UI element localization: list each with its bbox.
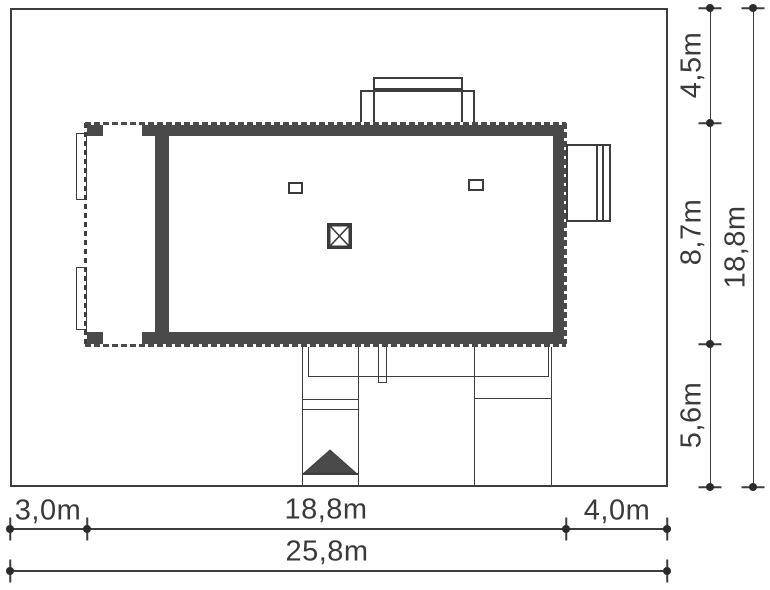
roof-outline-top-dashed xyxy=(85,122,566,125)
site-plan: 3,0m 18,8m 4,0m 25,8m 4,5m 8,7m 5,6m 18,… xyxy=(0,0,770,590)
terrace-line-v7 xyxy=(548,345,549,377)
dim-dot xyxy=(6,567,14,575)
terrace-step-line-h5 xyxy=(474,398,552,399)
walkway-step-line-2 xyxy=(302,409,359,410)
dim-label-right-top: 4,5m xyxy=(676,32,709,98)
roof-window-right xyxy=(468,179,484,191)
top-dormer-outline-outer xyxy=(360,90,475,124)
terrace-line-v2 xyxy=(308,345,309,377)
roof-outline-bottom-dashed xyxy=(85,344,566,347)
walkway-right-edge xyxy=(358,345,359,486)
terrace-step-line-h2 xyxy=(378,382,387,383)
dim-dot xyxy=(749,483,757,491)
dim-label-bottom-total: 25,8m xyxy=(285,536,368,569)
dim-dot xyxy=(706,4,714,12)
dim-dot xyxy=(562,525,570,533)
dim-label-right-middle: 8,7m xyxy=(676,199,709,265)
terrace-open-edge-dashed xyxy=(84,123,87,345)
dim-dot xyxy=(663,525,671,533)
terrace-line-v6 xyxy=(474,345,475,486)
dim-line-right-segments xyxy=(710,8,712,487)
right-bay-inner-line-2 xyxy=(602,145,604,221)
right-side-bay-outline xyxy=(566,144,611,222)
dim-dot xyxy=(749,4,757,12)
dim-dot xyxy=(706,119,714,127)
dim-label-right-bottom: 5,6m xyxy=(676,382,709,448)
house-wall-left xyxy=(155,123,169,345)
dim-dot xyxy=(663,567,671,575)
dim-line-bottom-total xyxy=(10,570,668,572)
terrace-pillar-top xyxy=(87,123,103,136)
dim-label-bottom-middle: 18,8m xyxy=(284,494,367,527)
entrance-arrow xyxy=(303,449,357,474)
dim-line-right-total xyxy=(753,8,755,487)
dim-label-bottom-left: 3,0m xyxy=(15,495,81,528)
house-wall-top xyxy=(142,123,566,136)
dim-dot xyxy=(706,483,714,491)
roof-window-left xyxy=(288,182,303,194)
dim-dot xyxy=(6,525,14,533)
right-bay-inner-line-1 xyxy=(596,145,598,221)
chimney-symbol xyxy=(327,223,352,249)
dim-dot xyxy=(83,525,91,533)
terrace-step-line-h1 xyxy=(308,376,549,377)
terrace-right-edge xyxy=(551,345,552,486)
dim-label-bottom-right: 4,0m xyxy=(584,495,650,528)
chimney-x-icon xyxy=(327,223,352,249)
dim-dot xyxy=(706,340,714,348)
entrance-arrow-icon xyxy=(303,449,357,474)
dim-label-right-total: 18,8m xyxy=(720,205,753,288)
walkway-step-line-1 xyxy=(302,399,359,400)
